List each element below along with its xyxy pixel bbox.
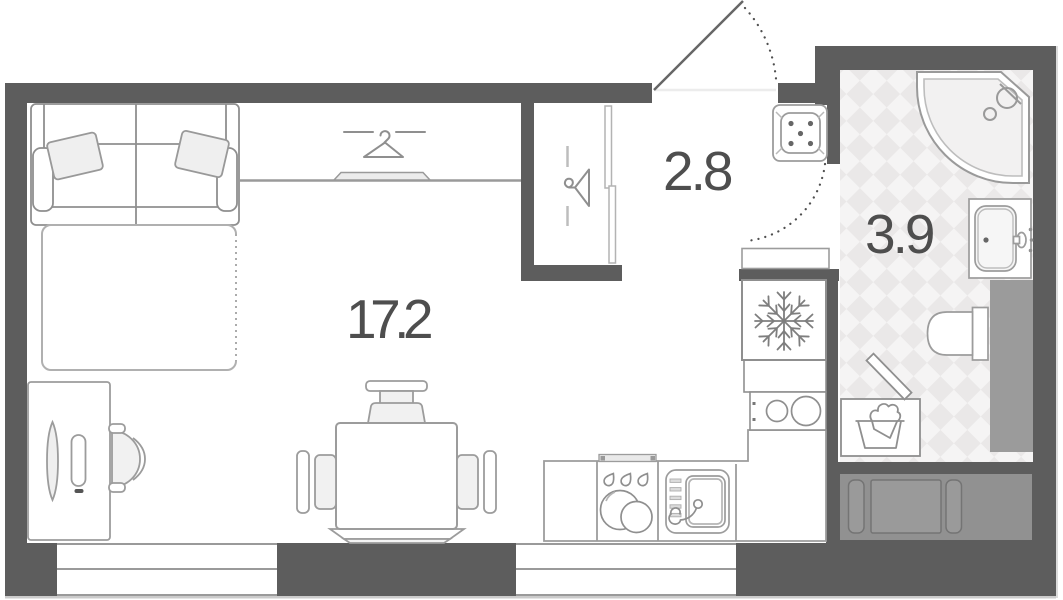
svg-text:3.9: 3.9: [865, 203, 933, 265]
svg-text:2.8: 2.8: [663, 140, 732, 202]
svg-text:17.2: 17.2: [346, 288, 431, 350]
